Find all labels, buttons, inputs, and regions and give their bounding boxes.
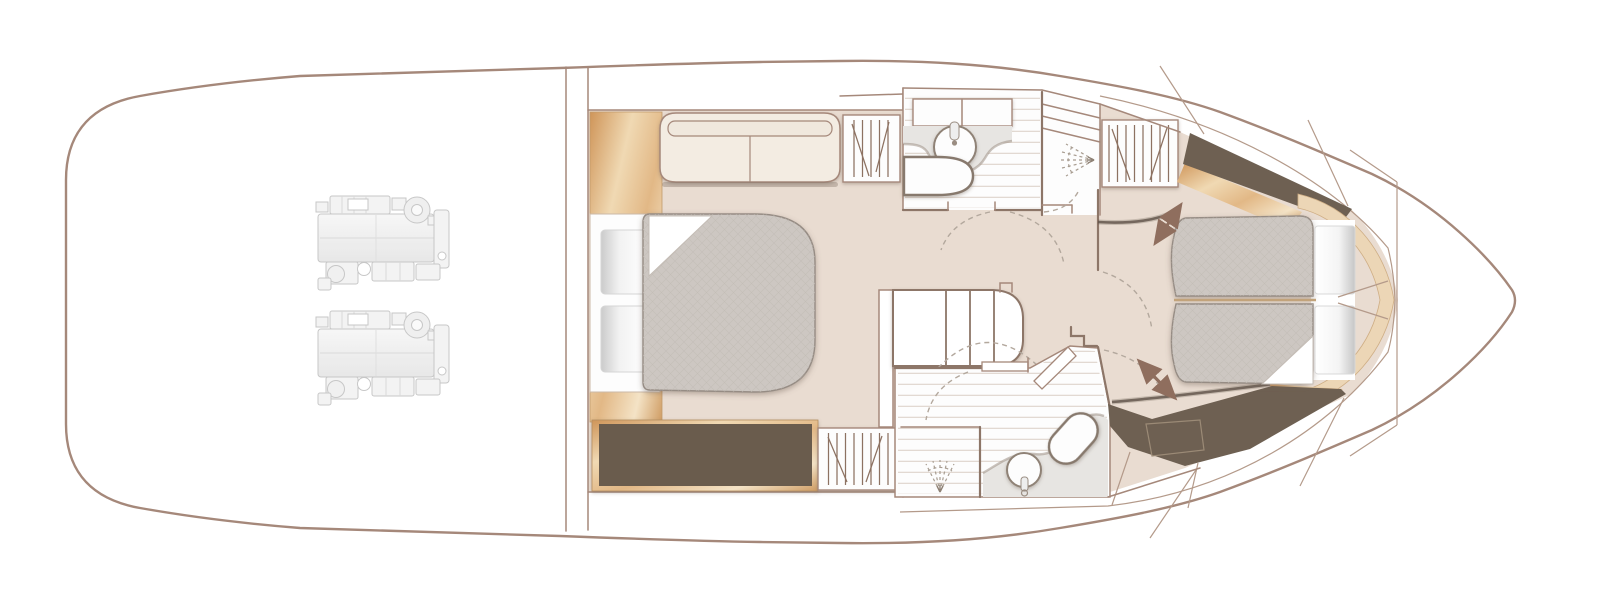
shower-compartment [1042,90,1100,215]
pillow [601,230,647,294]
sofa-shadow [662,182,838,187]
pillow [601,306,647,372]
low-dark-cabinet [592,420,818,491]
pillow [1315,306,1355,374]
hanging-locker [1102,120,1178,187]
toilet [904,157,973,195]
deck-plan-svg [0,0,1600,611]
double-berth [643,214,815,392]
starboard-engine [316,311,449,405]
staircase [893,290,1023,366]
pillow [1315,226,1355,294]
midship-bathroom [903,88,1100,215]
hanging-locker-forward [818,428,897,490]
handrail-wall [879,290,893,427]
split-double-berth [1171,216,1316,384]
sofa [660,113,840,182]
door-leaf [982,362,1028,371]
hanging-locker-aft [843,115,900,182]
floor-plan-page [0,0,1600,611]
port-engine [316,196,449,290]
